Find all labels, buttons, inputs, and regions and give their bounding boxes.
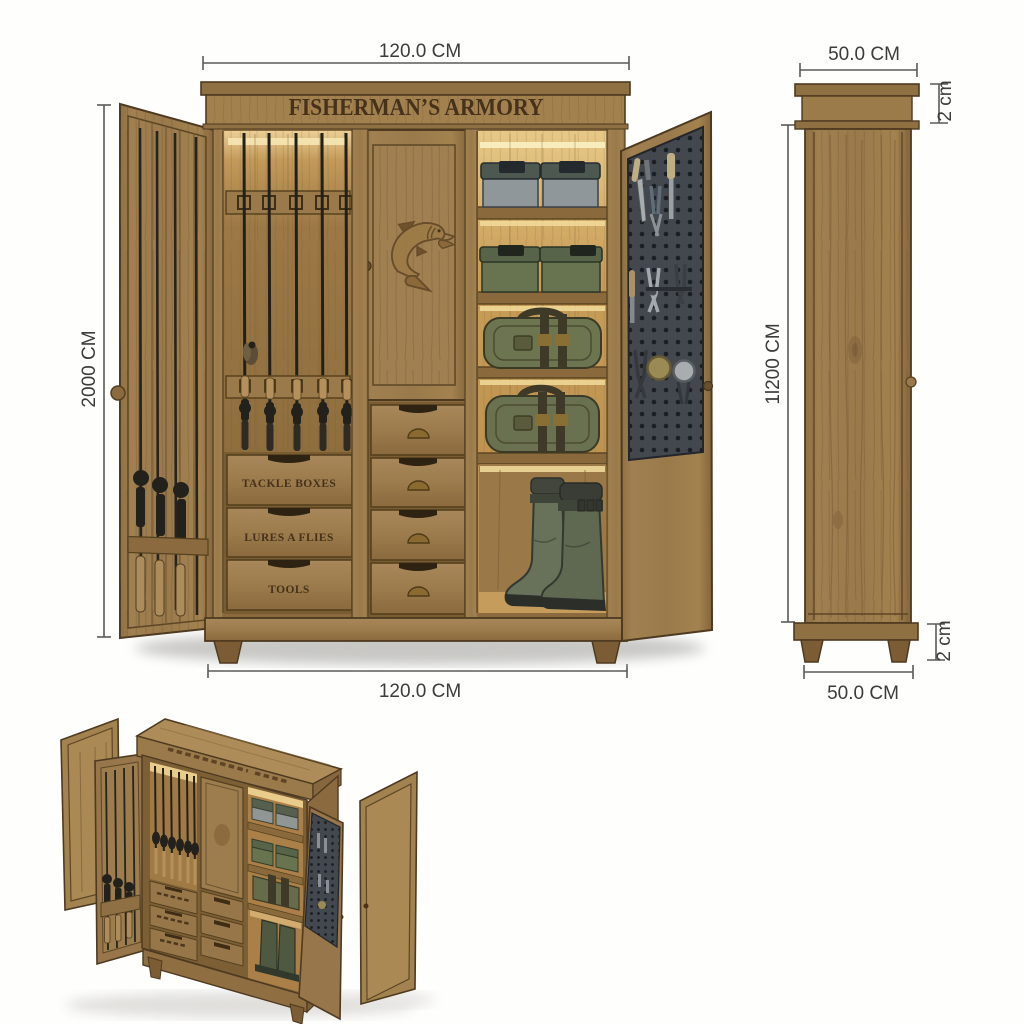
- svg-text:TACKLE BOXES: TACKLE BOXES: [242, 478, 336, 490]
- svg-text:50.0 CM: 50.0 CM: [828, 44, 900, 65]
- svg-text:TOOLS: TOOLS: [268, 584, 309, 596]
- svg-text:120.0 CM: 120.0 CM: [379, 681, 461, 702]
- svg-text:2 cm: 2 cm: [934, 620, 955, 661]
- svg-text:2 cm: 2 cm: [935, 80, 956, 121]
- svg-text:2000 CM: 2000 CM: [79, 330, 100, 407]
- svg-text:FISHERMAN’S ARMORY: FISHERMAN’S ARMORY: [289, 95, 544, 121]
- svg-text:50.0 CM: 50.0 CM: [827, 683, 899, 704]
- svg-text:LURES A FLIES: LURES A FLIES: [244, 532, 334, 544]
- svg-text:120.0 CM: 120.0 CM: [379, 41, 461, 62]
- svg-text:1l200 CM: 1l200 CM: [763, 323, 784, 404]
